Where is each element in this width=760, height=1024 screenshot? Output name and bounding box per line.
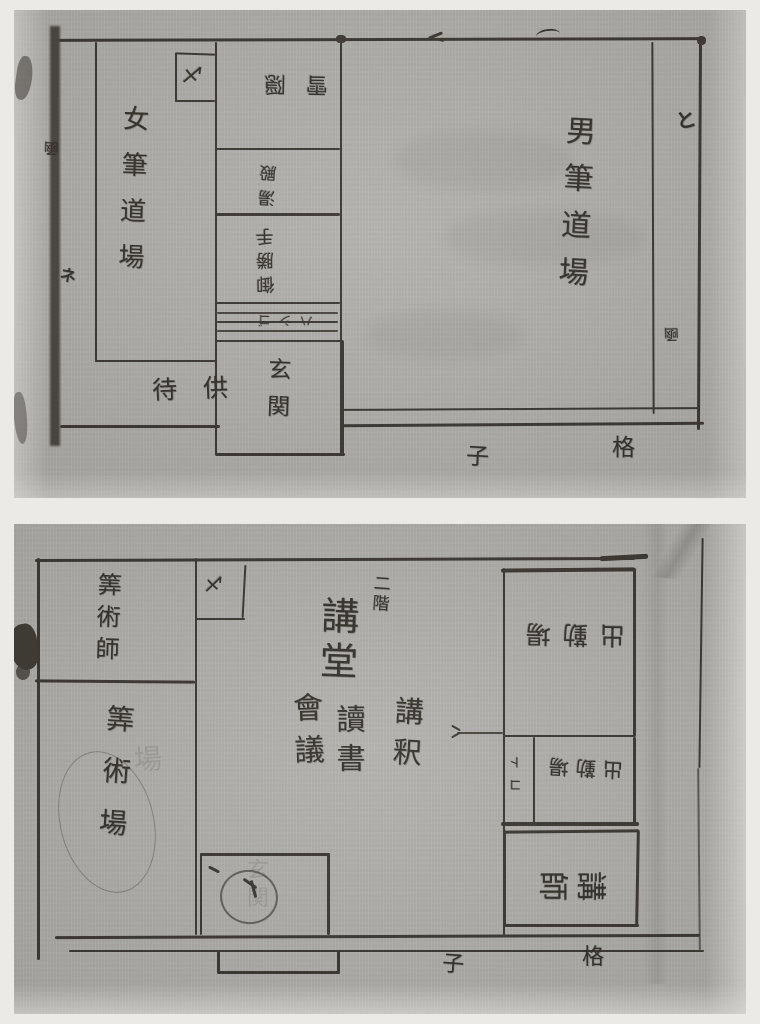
corner-blot [697, 36, 706, 45]
paper-edge-bottom [14, 984, 746, 1014]
bleed-smudge [394, 130, 574, 190]
wall-left-gutter [50, 26, 60, 446]
second-floor-photo: 筭術師 筭術場 二階 講堂 講釈 讀書 會議 出勤場 出勤場 コト 講師 〆 子… [14, 524, 746, 1014]
wall-mark-left-upper: 凾 [44, 140, 60, 156]
room-label-koushi-rotated: 講師 [531, 867, 607, 897]
wall-left [37, 558, 40, 960]
wall-bottom-right-upper [340, 407, 700, 411]
step-left [217, 950, 220, 973]
shukkinba2-right [633, 737, 636, 824]
wall-genkan-bottom [215, 453, 345, 456]
room-label-onna-fude-dojo: 女筆道場 [115, 105, 147, 290]
closet-box-right [242, 565, 247, 618]
torn-edge-blot-bottom [14, 391, 30, 444]
toko-mark-rotated: コト [511, 746, 524, 792]
wall-bottom-lower [69, 950, 704, 952]
wall-bottom-left [60, 425, 220, 428]
shukkinba1-top [501, 567, 635, 572]
room-label-shukkinba-lower-rotated: 出勤場 [542, 756, 624, 780]
arrow-stroke [451, 725, 461, 732]
wall-machidomo-top [95, 360, 216, 362]
wall-sanjutsushi-bottom [35, 679, 195, 683]
wall-roomC-bottom [215, 302, 340, 304]
toko-divider [533, 737, 535, 824]
scribble-circle [216, 865, 282, 928]
closet-cursive-mark: 〆 [180, 60, 206, 86]
bleed-smudge [364, 310, 524, 360]
label-nikai: 二階 [369, 573, 389, 614]
koushi-left [503, 830, 506, 926]
koushi-right [635, 830, 640, 926]
shukkinba1-right [633, 568, 636, 737]
wall-bottom-right-lower [340, 422, 704, 428]
room-label-setchin-rotated: 雪隠 [244, 71, 328, 94]
koushi-top [503, 829, 639, 833]
label-koushaku: 講釈 [389, 695, 422, 778]
wall-mark-right-lower: 凾 [664, 326, 680, 342]
wall-corridor [95, 42, 97, 362]
stair-tread [217, 330, 338, 332]
label-koudou: 講堂 [315, 595, 356, 686]
ink-tick [208, 865, 220, 873]
wall-top [58, 37, 702, 42]
room-label-sanjutsu-shi: 筭術師 [92, 572, 119, 669]
lattice-label-ko: 子 [441, 953, 464, 976]
wall-roomA-bottom [215, 148, 340, 150]
shukkinba2-bottom [501, 822, 639, 826]
lattice-label-ko: 子 [465, 445, 489, 469]
closet-box-top [175, 52, 215, 55]
wall-mark-right-upper: と [674, 108, 698, 132]
closet-box-bottom [195, 618, 245, 620]
koushi-bottom [503, 924, 639, 927]
first-floor-photo: 女筆道場 男筆道場 待供 玄関 雪隠 湯殿 御勝手 ハシゴ 子 格 〆 凾 ネ … [14, 10, 746, 498]
wall-right-outer [697, 38, 702, 430]
wall-genkan-top [215, 340, 342, 342]
ink-blot-left-small [16, 664, 30, 680]
paper-edge-right [708, 10, 746, 498]
small-room-left [200, 853, 202, 935]
stairs-label-rotated: ハシゴ [250, 312, 313, 326]
lattice-label-koshi: 格 [582, 947, 604, 969]
small-room-right [327, 853, 330, 935]
wall-left-column [195, 558, 197, 935]
label-kaigi: 會議 [289, 692, 322, 777]
wall-right-outer-lower [697, 768, 701, 950]
paper-edge-right [706, 524, 746, 1014]
closet-box-left [175, 53, 177, 102]
step-bottom [217, 971, 340, 974]
room-label-yudono-rotated: 湯殿 [261, 157, 281, 208]
room-label-okatte-rotated: 御勝手 [257, 222, 276, 294]
torn-edge-blot-top [14, 55, 35, 101]
wall-mark-left-lower: ネ [59, 267, 78, 286]
small-room-top [200, 853, 330, 856]
wall-bottom-upper [55, 934, 700, 939]
shukkinba1-bottom [503, 735, 635, 737]
step-right [337, 950, 340, 973]
wall-roomB-bottom [215, 213, 340, 216]
wall-genkan-right-thick [340, 340, 344, 455]
ghost-text-ba: 場 [133, 745, 163, 775]
closet-cursive-mark: 〆 [203, 573, 226, 596]
room-label-machidomo: 待供 [152, 374, 255, 403]
bleed-smudge [444, 210, 644, 265]
wall-top [35, 557, 635, 562]
label-dokusho: 讀書 [334, 704, 363, 782]
lattice-label-koshi: 格 [612, 437, 635, 460]
paper-edge-bottom [14, 472, 746, 498]
arrow-stroke [451, 732, 461, 739]
closet-box-bottom [175, 100, 215, 102]
corner-blot [336, 35, 346, 43]
room-label-shukkinba-upper-rotated: 出勤場 [514, 621, 625, 648]
wall-top-right-thick [600, 554, 648, 562]
fold-shadow-right [642, 524, 668, 984]
dash-line [457, 732, 503, 734]
room-label-otoko-fude-dojo: 男筆道場 [553, 114, 593, 303]
wall-right-inner [651, 42, 654, 414]
room-label-genkan: 玄関 [263, 357, 289, 432]
wall-right-outer-upper [698, 538, 703, 768]
